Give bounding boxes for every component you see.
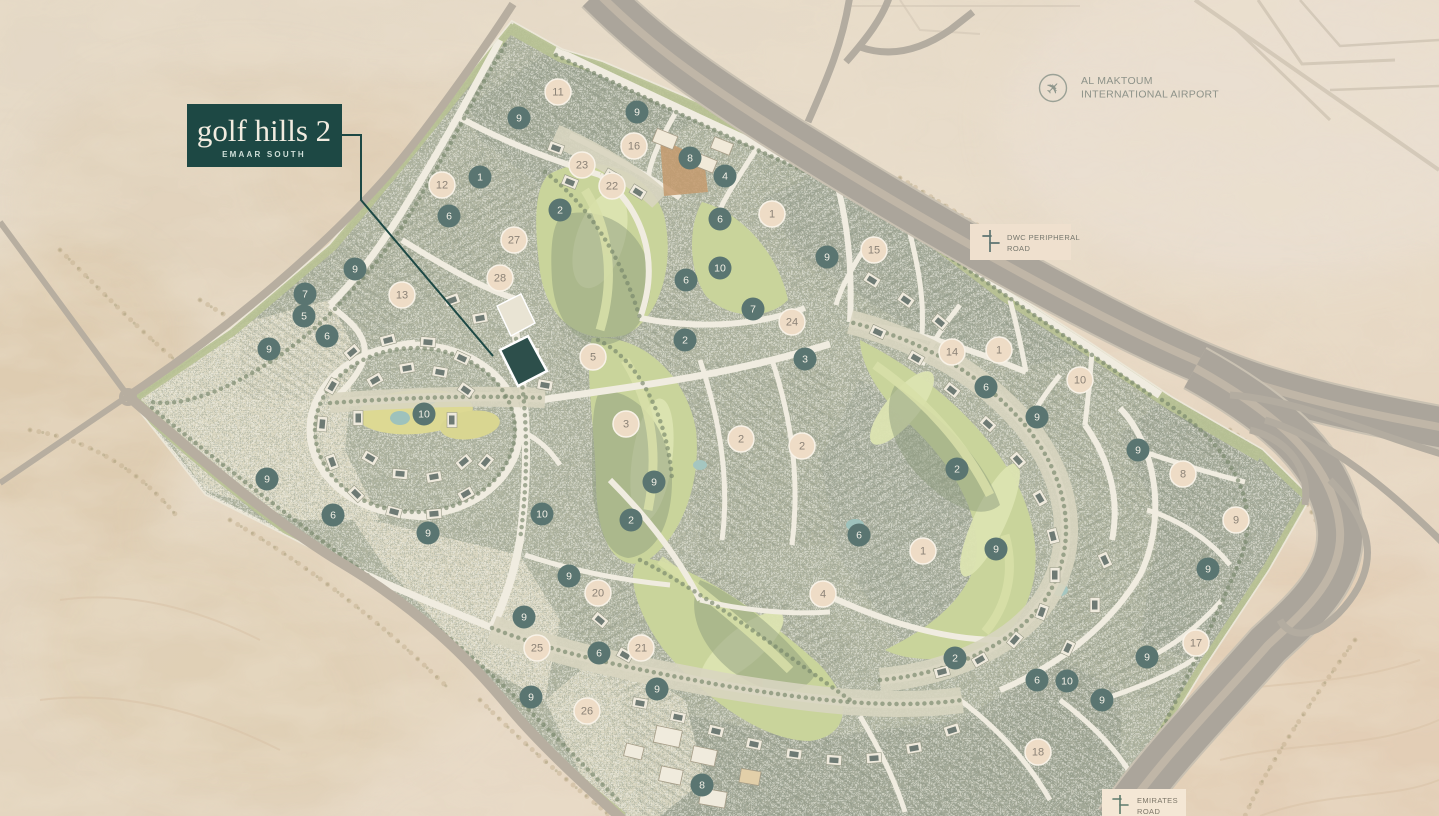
svg-text:23: 23 <box>576 160 588 172</box>
svg-text:9: 9 <box>1233 515 1239 527</box>
svg-text:6: 6 <box>983 382 989 394</box>
svg-text:4: 4 <box>820 589 826 601</box>
svg-text:9: 9 <box>634 107 640 119</box>
svg-text:3: 3 <box>802 354 808 366</box>
svg-text:10: 10 <box>1074 375 1086 387</box>
svg-text:9: 9 <box>521 612 527 624</box>
svg-text:DWC PERIPHERAL: DWC PERIPHERAL <box>1007 233 1080 242</box>
svg-text:6: 6 <box>596 648 602 660</box>
svg-text:27: 27 <box>508 235 520 247</box>
svg-text:12: 12 <box>436 180 448 192</box>
svg-text:golf hills 2: golf hills 2 <box>197 113 331 148</box>
svg-text:2: 2 <box>952 653 958 665</box>
svg-text:9: 9 <box>516 113 522 125</box>
svg-text:1: 1 <box>769 209 775 221</box>
svg-text:9: 9 <box>1135 445 1141 457</box>
svg-text:7: 7 <box>302 289 308 301</box>
svg-text:4: 4 <box>722 171 728 183</box>
svg-text:14: 14 <box>946 347 958 359</box>
svg-text:8: 8 <box>687 153 693 165</box>
svg-text:9: 9 <box>651 477 657 489</box>
svg-text:7: 7 <box>750 304 756 316</box>
svg-text:9: 9 <box>528 692 534 704</box>
svg-text:9: 9 <box>824 252 830 264</box>
svg-text:6: 6 <box>683 275 689 287</box>
svg-text:10: 10 <box>714 263 726 275</box>
svg-text:25: 25 <box>531 643 543 655</box>
svg-text:13: 13 <box>396 290 408 302</box>
svg-text:11: 11 <box>552 87 563 99</box>
svg-text:1: 1 <box>996 345 1002 357</box>
svg-text:6: 6 <box>717 214 723 226</box>
svg-text:9: 9 <box>264 474 270 486</box>
svg-text:24: 24 <box>786 317 798 329</box>
svg-text:2: 2 <box>954 464 960 476</box>
svg-text:1: 1 <box>920 546 926 558</box>
svg-text:8: 8 <box>1180 469 1186 481</box>
svg-text:15: 15 <box>868 245 880 257</box>
svg-text:9: 9 <box>425 528 431 540</box>
svg-text:AL MAKTOUM: AL MAKTOUM <box>1081 75 1153 87</box>
svg-text:9: 9 <box>1144 652 1150 664</box>
svg-text:6: 6 <box>330 510 336 522</box>
svg-text:2: 2 <box>557 205 563 217</box>
svg-text:2: 2 <box>682 335 688 347</box>
svg-text:21: 21 <box>635 643 647 655</box>
svg-text:2: 2 <box>738 434 744 446</box>
svg-text:2: 2 <box>799 441 805 453</box>
svg-text:9: 9 <box>993 544 999 556</box>
svg-text:22: 22 <box>606 181 618 193</box>
svg-text:EMIRATES: EMIRATES <box>1137 796 1178 805</box>
svg-text:10: 10 <box>1061 676 1073 688</box>
svg-text:9: 9 <box>1034 412 1040 424</box>
svg-text:10: 10 <box>536 509 548 521</box>
svg-text:10: 10 <box>418 409 430 421</box>
svg-text:6: 6 <box>324 331 330 343</box>
svg-text:6: 6 <box>1034 675 1040 687</box>
svg-text:18: 18 <box>1032 747 1044 759</box>
svg-text:17: 17 <box>1190 638 1202 650</box>
svg-text:1: 1 <box>477 172 483 184</box>
svg-text:EMAAR SOUTH: EMAAR SOUTH <box>222 150 306 159</box>
svg-text:6: 6 <box>446 211 452 223</box>
svg-text:16: 16 <box>628 141 640 153</box>
svg-text:20: 20 <box>592 588 604 600</box>
svg-text:ROAD: ROAD <box>1007 244 1030 253</box>
svg-text:6: 6 <box>856 530 862 542</box>
svg-text:9: 9 <box>266 344 272 356</box>
svg-text:9: 9 <box>1099 695 1105 707</box>
svg-text:9: 9 <box>1205 564 1211 576</box>
svg-text:5: 5 <box>301 311 307 323</box>
svg-text:9: 9 <box>654 684 660 696</box>
svg-text:8: 8 <box>699 780 705 792</box>
svg-text:9: 9 <box>352 264 358 276</box>
svg-text:3: 3 <box>623 419 629 431</box>
svg-text:28: 28 <box>494 273 506 285</box>
svg-text:2: 2 <box>628 515 634 527</box>
svg-text:9: 9 <box>566 571 572 583</box>
svg-text:26: 26 <box>581 706 593 718</box>
svg-text:INTERNATIONAL AIRPORT: INTERNATIONAL AIRPORT <box>1081 89 1219 101</box>
svg-text:5: 5 <box>590 352 596 364</box>
svg-text:ROAD: ROAD <box>1137 807 1160 816</box>
